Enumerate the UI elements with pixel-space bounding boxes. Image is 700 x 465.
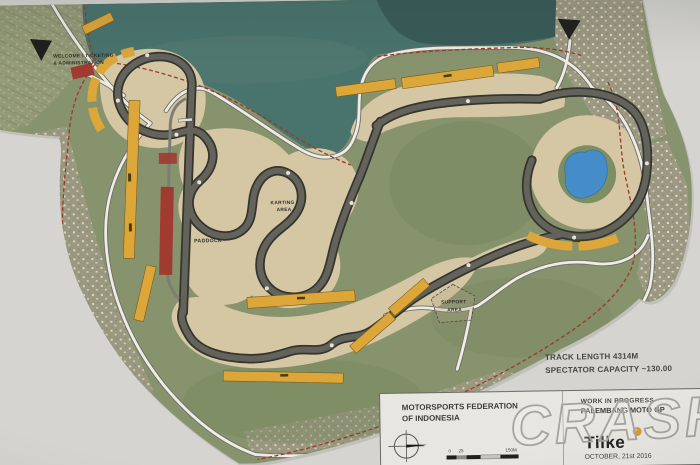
race-control-building [159,153,177,164]
scale-mid-label: 25 [458,448,464,453]
karting-label-line1: KARTING [270,200,294,206]
support-label-line1: SUPPORT [441,299,466,305]
paddock-label: PADDOCK [194,238,222,244]
circuit-masterplan-photo: WELCOME / TICKETING & ADMINISTRATION PAD… [0,0,700,465]
organisation-line2: OF INDONESIA [402,413,460,423]
drawing-date: OCTOBER, 21st 2016 [585,453,652,461]
support-label-line2: AREA [447,307,462,313]
welcome-label-line2: & ADMINISTRATION [53,60,104,67]
pit-building [159,187,174,275]
crash-watermark: CRASH [509,383,700,457]
welcome-label-line1: WELCOME / TICKETING [53,53,114,60]
organisation-line1: MOTORSPORTS FEDERATION [402,401,519,412]
karting-label-line2: AREA [277,207,292,213]
masterplan-svg: WELCOME / TICKETING & ADMINISTRATION PAD… [0,0,700,465]
track-length-annotation: TRACK LENGTH 4314M [545,351,639,361]
